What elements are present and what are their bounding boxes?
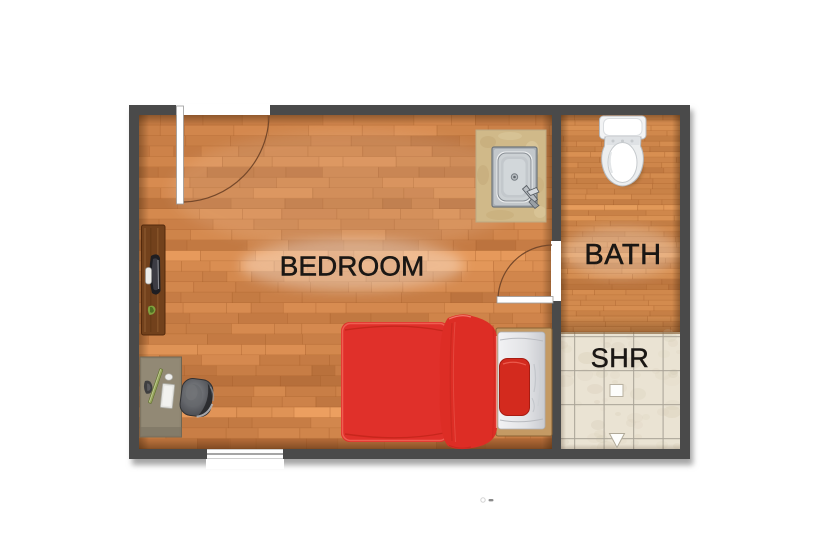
svg-text:BATH: BATH [584, 239, 661, 271]
svg-text:SHR: SHR [591, 343, 650, 373]
svg-text:BEDROOM: BEDROOM [280, 251, 425, 282]
